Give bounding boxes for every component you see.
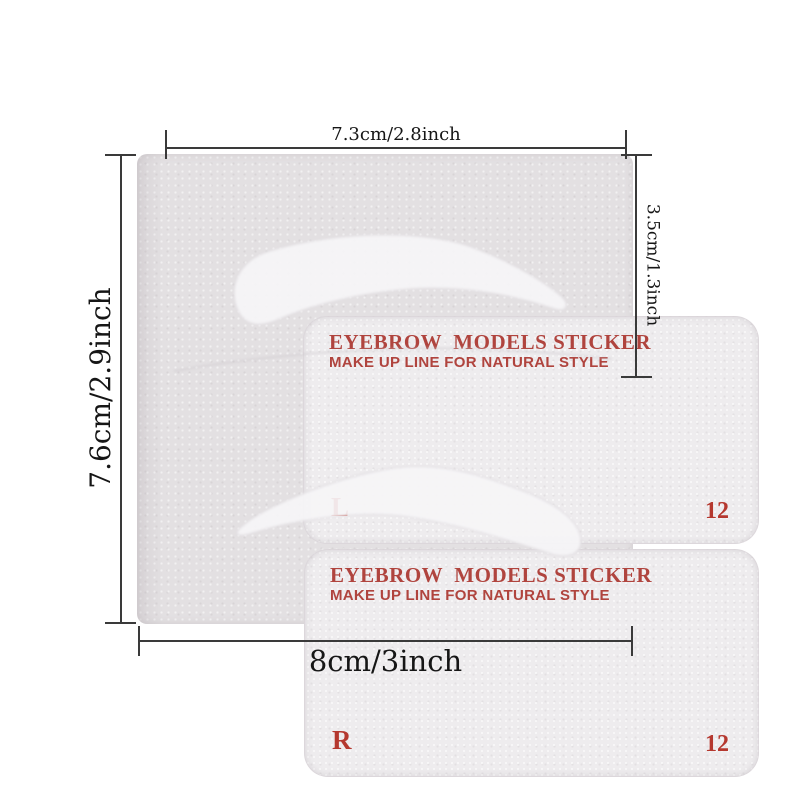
dimension-tick	[105, 154, 136, 156]
product-dimension-image: EYEBROW MODELS STICKER MAKE UP LINE FOR …	[0, 0, 800, 800]
dimension-label-top-width: 7.3cm/2.8inch	[166, 126, 626, 144]
sticker-subtitle: MAKE UP LINE FOR NATURAL STYLE	[329, 354, 609, 371]
style-number: 12	[705, 499, 729, 523]
sticker-title: EYEBROW MODELS STICKER	[330, 563, 652, 588]
style-number: 12	[705, 732, 729, 756]
side-label-L: L	[331, 494, 349, 521]
dimension-line-bottom	[139, 640, 632, 642]
dimension-label-sticker-height: 3.5cm/1.3inch	[644, 204, 661, 326]
sticker-title: EYEBROW MODELS STICKER	[329, 330, 651, 355]
side-label-R: R	[332, 727, 352, 754]
sticker-sheet: EYEBROW MODELS STICKER MAKE UP LINE FOR …	[137, 154, 633, 624]
sticker-subtitle: MAKE UP LINE FOR NATURAL STYLE	[330, 587, 610, 604]
dimension-tick	[138, 626, 140, 656]
dimension-line-top	[166, 147, 626, 149]
sticker-panel-left-brow: EYEBROW MODELS STICKER MAKE UP LINE FOR …	[303, 316, 759, 544]
dimension-line-left	[120, 154, 122, 624]
dimension-label-bottom-width: 8cm/3inch	[139, 647, 632, 676]
dimension-label-sheet-height: 7.6cm/2.9inch	[87, 287, 115, 488]
dimension-tick	[621, 154, 652, 156]
dimension-tick	[165, 130, 167, 159]
dimension-tick	[631, 626, 633, 656]
dimension-line-right	[635, 154, 637, 378]
dimension-tick	[105, 622, 136, 624]
dimension-tick	[621, 376, 652, 378]
